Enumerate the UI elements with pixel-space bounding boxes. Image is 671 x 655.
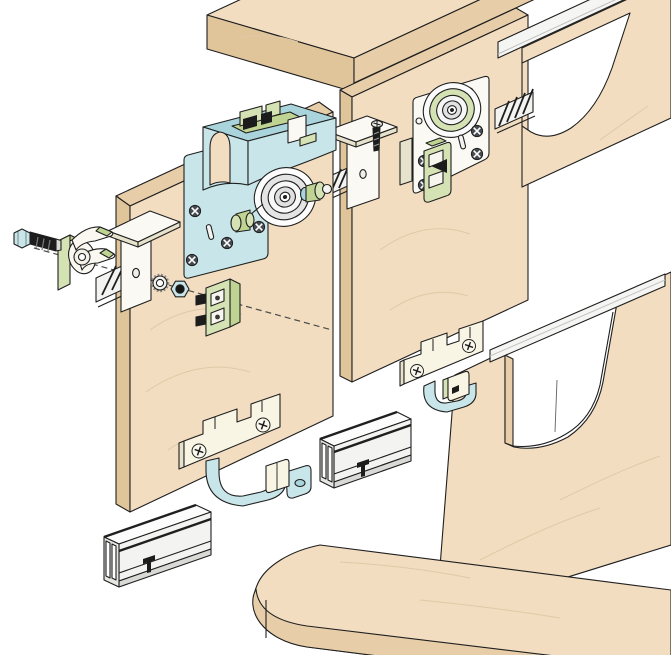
guide-clip bbox=[266, 459, 289, 492]
diagram-stage bbox=[0, 0, 671, 655]
cutout-wall-edge bbox=[555, 380, 557, 432]
phillips-screw-icon bbox=[410, 364, 423, 377]
phillips-screw-icon bbox=[186, 254, 197, 265]
bottom-track-left bbox=[104, 505, 211, 587]
bottom-track-right bbox=[320, 412, 411, 488]
phillips-screw-icon bbox=[253, 221, 264, 232]
hex-bolt bbox=[14, 229, 61, 251]
cutout-wall bbox=[505, 355, 513, 446]
bracket-hole bbox=[133, 268, 140, 277]
phillips-screw-icon bbox=[256, 418, 270, 432]
block-front bbox=[206, 279, 230, 336]
exploded-assembly-diagram bbox=[0, 0, 671, 655]
guide-plate-edge bbox=[400, 360, 404, 386]
guide-plate-edge bbox=[179, 441, 184, 469]
hex-nut bbox=[171, 281, 189, 297]
phillips-screw-icon bbox=[462, 339, 475, 352]
housing-arch-cutout bbox=[210, 132, 230, 185]
plate-hole bbox=[416, 118, 422, 124]
phillips-screw-icon bbox=[189, 205, 200, 216]
flange-hole bbox=[295, 480, 305, 487]
guide-clip-side bbox=[443, 378, 448, 399]
carriage-back-flap bbox=[400, 138, 412, 185]
phillips-screw-icon bbox=[192, 444, 206, 458]
phillips-screw-icon bbox=[471, 148, 482, 159]
block-side bbox=[230, 279, 240, 327]
bolt-head bbox=[14, 229, 30, 248]
bracket-hole bbox=[360, 170, 366, 179]
phillips-screw-icon bbox=[221, 237, 232, 248]
phillips-screw-icon bbox=[471, 125, 482, 136]
